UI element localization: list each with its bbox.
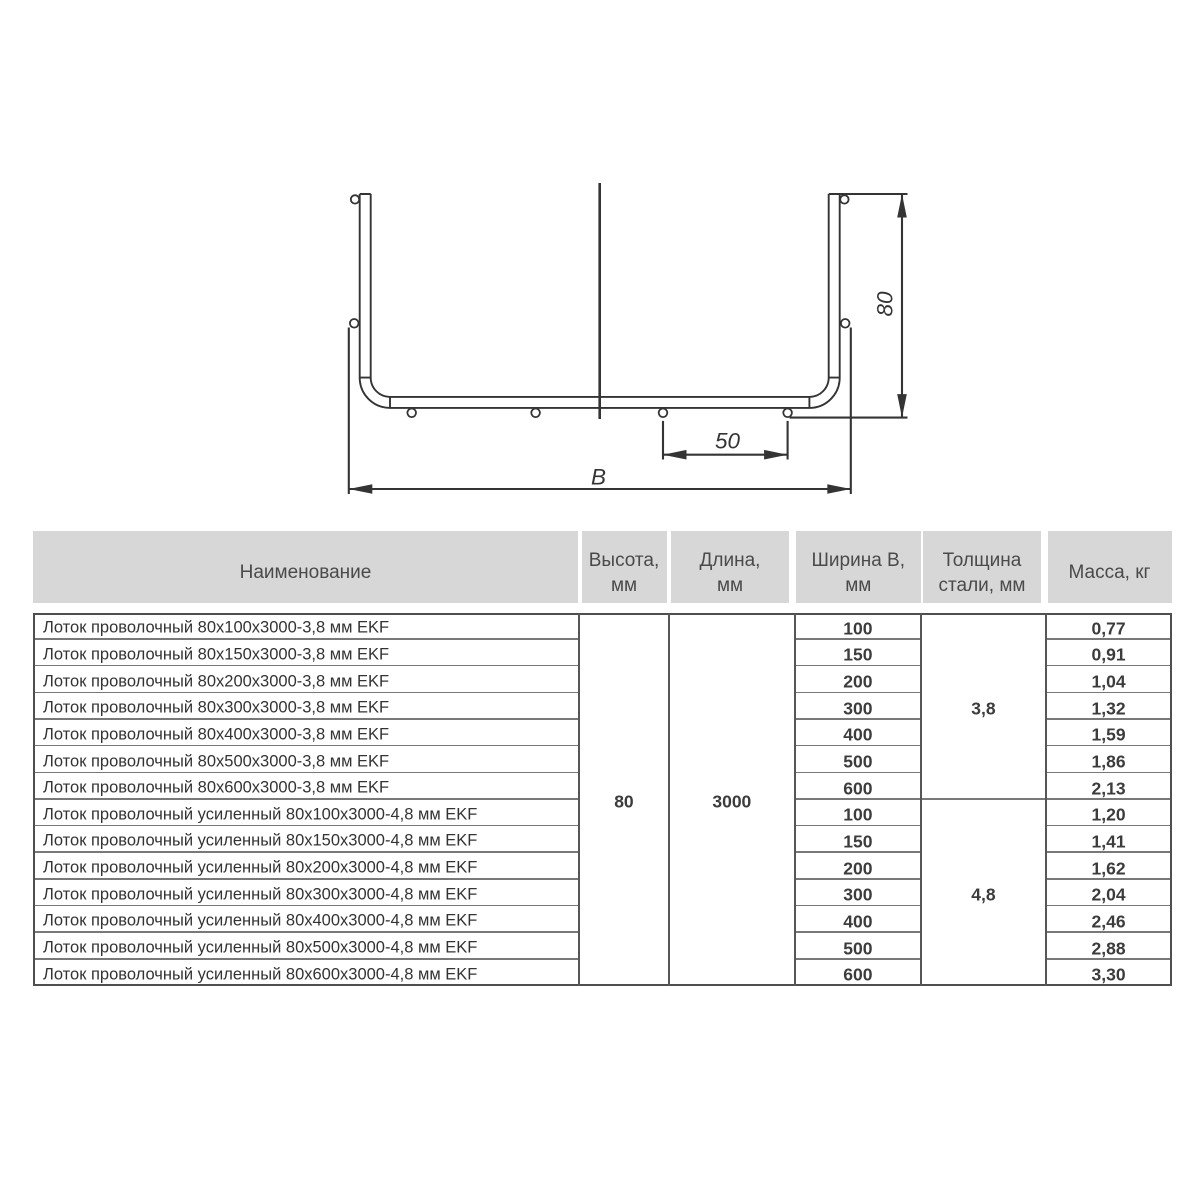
svg-text:50: 50: [715, 428, 741, 453]
svg-text:B: B: [591, 464, 606, 489]
svg-text:80: 80: [872, 291, 897, 317]
